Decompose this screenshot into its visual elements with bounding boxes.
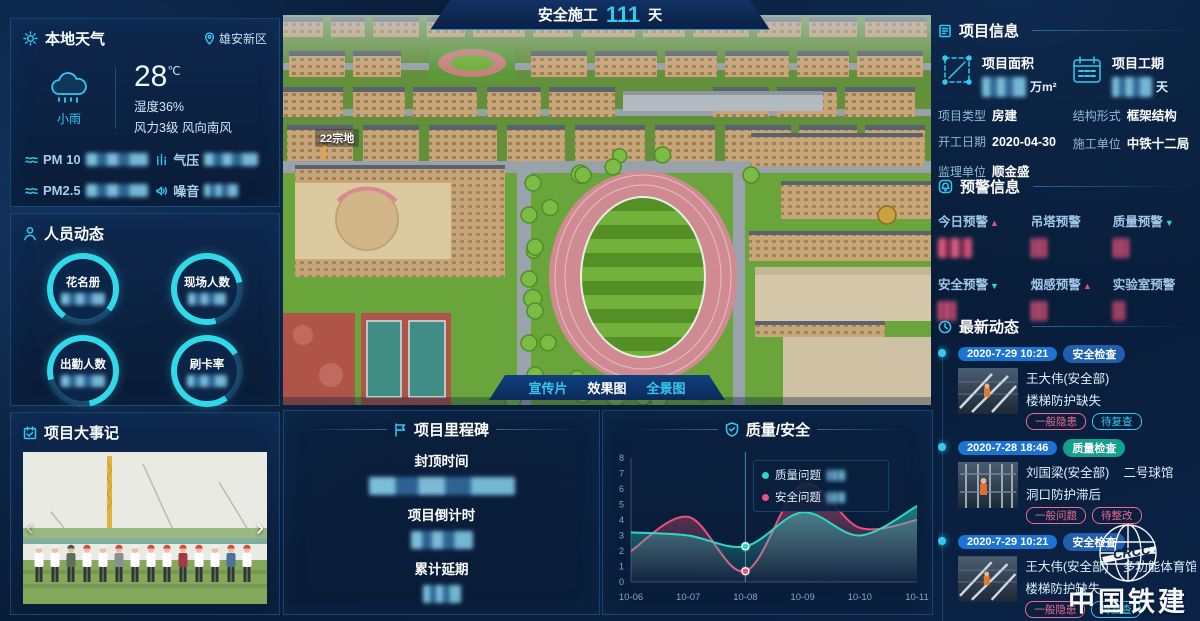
- inspection-photo-thumbnail: [958, 556, 1017, 602]
- blurred-value: [86, 184, 148, 197]
- project-row-value: 房建: [992, 109, 1017, 123]
- series-name: 质量问题: [775, 467, 821, 483]
- milestone-items: 封顶时间项目倒计时累计延期: [284, 440, 599, 603]
- update-date-badge: 2020-7-29 10:21: [958, 535, 1057, 549]
- title-decoration: [817, 429, 903, 430]
- metric-label: 噪音: [173, 181, 199, 200]
- trend-down-icon: ▼: [990, 281, 999, 291]
- blurred-value: [938, 238, 972, 258]
- ring-label: 出勤人数: [60, 356, 106, 372]
- project-duration-stat: 项目工期 天: [1070, 53, 1190, 97]
- metric-icon: [155, 184, 168, 197]
- trend-down-icon: ▼: [1165, 218, 1174, 228]
- title-decoration: [301, 429, 387, 430]
- dashboard-root: 安全施工 111 天 22宗地 宣传片效果图全景图 本地天气 雄安新区 小雨: [0, 0, 1200, 621]
- chart-title: 质量/安全: [746, 419, 810, 440]
- milestone-label: 封顶时间: [415, 450, 469, 470]
- blurred-value: [61, 293, 105, 305]
- milestone-panel: 项目里程碑 封顶时间项目倒计时累计延期: [283, 410, 600, 615]
- temperature-value: 28: [134, 60, 167, 93]
- carousel-prev-button[interactable]: ‹: [26, 516, 34, 540]
- events-title: 项目大事记: [44, 422, 119, 443]
- ring-content: 出勤人数: [53, 341, 113, 401]
- personnel-rings: 花名册现场人数出勤人数刷卡率: [11, 249, 279, 407]
- blurred-value: [204, 184, 238, 197]
- location-label: 雄安新区: [219, 30, 267, 47]
- milestone-label: 项目倒计时: [408, 504, 476, 524]
- update-date-badge: 2020-7-28 18:46: [958, 441, 1057, 455]
- project-row: 项目类型房建: [938, 105, 1067, 124]
- svg-text:10-06: 10-06: [619, 592, 643, 603]
- update-issue: 洞口防护滞后: [1026, 484, 1173, 503]
- alert-bell-icon: [938, 179, 953, 194]
- project-row: 开工日期2020-04-30: [938, 133, 1067, 152]
- aerial-render-image: [283, 15, 931, 405]
- update-issue: 楼梯防护缺失: [1026, 390, 1142, 409]
- update-entry[interactable]: 2020-7-28 18:46质量检查刘国梁(安全部)二号球馆洞口防护滞后一般问…: [958, 439, 1196, 524]
- svg-text:10-07: 10-07: [676, 592, 700, 603]
- project-row-label: 施工单位: [1073, 137, 1121, 151]
- plot-marker[interactable]: 22宗地: [315, 129, 359, 147]
- blurred-area-value: [982, 77, 1026, 97]
- personnel-ring: 出勤人数: [47, 335, 119, 407]
- metric-label: PM 10: [43, 152, 81, 167]
- series-color-dot: [762, 494, 769, 501]
- events-panel: 项目大事记 ‹ ›: [10, 412, 280, 615]
- person-icon: [23, 226, 37, 241]
- ring-label: 刷卡率: [190, 356, 225, 372]
- series-color-dot: [762, 472, 769, 479]
- area-unit: 万m²: [1030, 80, 1057, 94]
- quality-safety-panel: 质量/安全 01234567810-0610-0710-0810-0910-10…: [602, 410, 933, 615]
- update-person: 王大伟(安全部): [1026, 368, 1109, 387]
- update-tags: 一般隐患待复查: [1026, 413, 1142, 430]
- area-icon: [940, 53, 974, 87]
- update-entry-body: 刘国梁(安全部)二号球馆洞口防护滞后一般问题待整改: [958, 462, 1196, 524]
- alert-item: 烟感预警▲: [1031, 274, 1103, 321]
- weather-metric: 气压: [155, 150, 265, 169]
- milestone-title: 项目里程碑: [414, 419, 489, 440]
- project-detail-rows: 项目类型房建结构形式框架结构开工日期2020-04-30施工单位中铁十二局监理单…: [938, 105, 1192, 180]
- project-area-stat: 项目面积 万m²: [940, 53, 1060, 97]
- weather-panel: 本地天气 雄安新区 小雨 28℃ 湿度36% 风力3级 风向南风 PM 10气压…: [10, 18, 280, 207]
- alert-item: 今日预警▲: [938, 211, 1021, 258]
- safe-days-value: 111: [606, 4, 640, 26]
- crcc-abbr: CRCC: [1112, 542, 1152, 562]
- blurred-duration-value: [1112, 77, 1152, 97]
- title-rule: [1032, 30, 1192, 31]
- scene-tab-效果图[interactable]: 效果图: [587, 378, 626, 397]
- alert-label: 质量预警▼: [1113, 211, 1192, 230]
- blurred-value: [86, 153, 148, 166]
- title-decoration: [632, 429, 718, 430]
- alert-label: 实验室预警: [1113, 274, 1192, 293]
- metric-icon: [25, 184, 38, 197]
- milestone-label: 累计延期: [415, 558, 469, 578]
- update-entry-text: 刘国梁(安全部)二号球馆洞口防护滞后一般问题待整改: [1026, 462, 1173, 524]
- alerts-grid: 今日预警▲吊塔预警质量预警▼安全预警▼烟感预警▲实验室预警: [938, 197, 1192, 321]
- milestone-item: 封顶时间: [369, 450, 515, 495]
- project-row-label: 开工日期: [938, 135, 986, 149]
- document-icon: [938, 24, 952, 38]
- crcc-logo: CRCC 中国铁建: [1068, 520, 1188, 619]
- metric-icon: [25, 153, 38, 166]
- chart-tooltip: 质量问题安全问题: [753, 460, 889, 512]
- project-duration-label: 项目工期: [1112, 53, 1168, 72]
- milestone-item: 累计延期: [415, 558, 469, 603]
- svg-text:10-09: 10-09: [790, 592, 814, 603]
- update-entry-body: 王大伟(安全部)楼梯防护缺失一般隐患待复查: [958, 368, 1196, 430]
- alerts-panel: 预警信息 今日预警▲吊塔预警质量预警▼安全预警▼烟感预警▲实验室预警: [938, 176, 1192, 312]
- weather-metric: PM2.5: [25, 181, 151, 200]
- alerts-title: 预警信息: [960, 176, 1020, 197]
- blurred-value: [61, 375, 105, 387]
- ring-content: 花名册: [53, 259, 113, 319]
- updates-title: 最新动态: [959, 316, 1019, 337]
- weather-title: 本地天气: [45, 28, 105, 49]
- humidity-label: 湿度36%: [134, 96, 232, 115]
- update-location: 二号球馆: [1123, 462, 1173, 481]
- project-area-label: 项目面积: [982, 53, 1057, 72]
- blurred-value: [1031, 238, 1047, 258]
- update-entry-header: 2020-7-29 10:21安全检查: [958, 345, 1196, 363]
- chart-body: 01234567810-0610-0710-0810-0910-1010-11 …: [603, 442, 932, 619]
- alert-label: 烟感预警▲: [1031, 274, 1103, 293]
- location-chip: 雄安新区: [204, 30, 267, 47]
- safe-days-unit: 天: [648, 5, 662, 25]
- update-person-line: 王大伟(安全部): [1026, 368, 1142, 387]
- calendar-icon: [1070, 53, 1104, 87]
- shield-check-icon: [725, 422, 739, 437]
- sun-icon: [23, 31, 38, 46]
- weather-metric: PM 10: [25, 150, 151, 169]
- wind-label: 风力3级 风向南风: [134, 117, 232, 136]
- metric-icon: [155, 153, 168, 166]
- svg-text:1: 1: [619, 562, 624, 572]
- temperature-unit: ℃: [167, 64, 180, 78]
- svg-text:8: 8: [619, 453, 624, 463]
- alert-label: 今日预警▲: [938, 211, 1021, 230]
- svg-text:10-10: 10-10: [848, 592, 872, 603]
- scene-tab-bar: 宣传片效果图全景图: [489, 375, 725, 400]
- divider: [115, 67, 116, 129]
- update-type-badge: 安全检查: [1063, 345, 1125, 363]
- svg-text:7: 7: [619, 469, 624, 479]
- project-row-label: 结构形式: [1073, 109, 1121, 123]
- title-rule: [1032, 326, 1196, 327]
- ring-label: 现场人数: [184, 274, 230, 290]
- duration-unit: 天: [1156, 80, 1168, 94]
- weather-metric: 噪音: [155, 181, 265, 200]
- metric-label: 气压: [173, 150, 199, 169]
- blurred-value: [411, 531, 473, 549]
- inspection-photo-thumbnail: [958, 462, 1018, 508]
- svg-text:2: 2: [619, 546, 624, 556]
- update-entry-header: 2020-7-28 18:46质量检查: [958, 439, 1196, 457]
- metric-label: PM2.5: [43, 183, 81, 198]
- svg-text:3: 3: [619, 531, 624, 541]
- ring-content: 刷卡率: [177, 341, 237, 401]
- header-bar: 安全施工 111 天: [430, 0, 770, 30]
- project-info-panel: 项目信息 项目面积 万m² 项目工期 天 项目类型房建结构形式框架结构开工日期2…: [938, 20, 1192, 172]
- blurred-value: [204, 153, 258, 166]
- blurred-value: [827, 492, 845, 503]
- project-row-value: 2020-04-30: [992, 135, 1056, 149]
- trend-up-icon: ▲: [1083, 281, 1092, 291]
- project-row: 结构形式框架结构: [1073, 105, 1192, 124]
- group-photo: [23, 452, 267, 604]
- title-rule: [1033, 186, 1192, 187]
- clock-icon: [938, 320, 952, 334]
- blurred-value: [827, 470, 845, 481]
- personnel-panel: 人员动态 花名册现场人数出勤人数刷卡率: [10, 213, 280, 406]
- personnel-ring: 现场人数: [171, 253, 243, 325]
- weather-condition: 小雨: [57, 110, 81, 127]
- scene-tab-全景图[interactable]: 全景图: [647, 378, 686, 397]
- flag-icon: [394, 423, 407, 437]
- inspection-photo-thumbnail: [958, 368, 1018, 414]
- alert-item: 安全预警▼: [938, 274, 1021, 321]
- personnel-ring: 花名册: [47, 253, 119, 325]
- update-type-badge: 质量检查: [1063, 439, 1125, 457]
- carousel-next-button[interactable]: ›: [256, 516, 264, 540]
- update-date-badge: 2020-7-29 10:21: [958, 347, 1057, 361]
- blurred-value: [187, 375, 227, 387]
- weather-current: 小雨 28℃ 湿度36% 风力3级 风向南风: [11, 54, 279, 138]
- milestone-item: 项目倒计时: [408, 504, 476, 549]
- header-title: 安全施工: [538, 4, 598, 25]
- alert-item: 吊塔预警: [1031, 211, 1103, 258]
- alert-item: 实验室预警: [1113, 274, 1192, 321]
- tooltip-series-row: 安全问题: [762, 489, 880, 505]
- project-row-label: 项目类型: [938, 109, 986, 123]
- trend-up-icon: ▲: [990, 218, 999, 228]
- svg-text:10-11: 10-11: [905, 592, 929, 603]
- update-person-line: 刘国梁(安全部)二号球馆: [1026, 462, 1173, 481]
- status-tag: 一般隐患: [1026, 413, 1086, 430]
- blurred-value: [423, 585, 461, 603]
- status-tag: 待复查: [1092, 413, 1142, 430]
- 3d-scene-view[interactable]: 22宗地 宣传片效果图全景图: [283, 15, 931, 405]
- update-person: 刘国梁(安全部): [1026, 462, 1109, 481]
- blurred-value: [369, 477, 515, 495]
- svg-text:5: 5: [619, 500, 624, 510]
- project-stats: 项目面积 万m² 项目工期 天: [938, 41, 1192, 105]
- project-row-value: 框架结构: [1127, 109, 1177, 123]
- svg-text:6: 6: [619, 484, 624, 494]
- personnel-ring: 刷卡率: [171, 335, 243, 407]
- personnel-title: 人员动态: [44, 223, 104, 244]
- ring-label: 花名册: [66, 274, 101, 290]
- project-info-title: 项目信息: [959, 20, 1019, 41]
- project-row: 施工单位中铁十二局: [1073, 133, 1192, 152]
- svg-text:4: 4: [619, 515, 624, 525]
- title-decoration: [496, 429, 582, 430]
- tooltip-series-row: 质量问题: [762, 467, 880, 483]
- svg-text:0: 0: [619, 577, 624, 587]
- event-photo-carousel: ‹ ›: [23, 452, 267, 604]
- calendar-note-icon: [23, 426, 37, 440]
- pin-icon: [204, 32, 215, 45]
- alert-label: 安全预警▼: [938, 274, 1021, 293]
- blurred-value: [1113, 238, 1129, 258]
- weather-metrics: PM 10气压PM2.5噪音: [11, 138, 279, 200]
- crcc-name: 中国铁建: [1068, 580, 1188, 619]
- alert-label: 吊塔预警: [1031, 211, 1103, 230]
- update-entry-text: 王大伟(安全部)楼梯防护缺失一般隐患待复查: [1026, 368, 1142, 430]
- crcc-globe-icon: CRCC: [1092, 520, 1164, 586]
- ring-content: 现场人数: [177, 259, 237, 319]
- project-row-value: 中铁十二局: [1127, 137, 1190, 151]
- blurred-value: [188, 293, 226, 305]
- scene-tab-宣传片[interactable]: 宣传片: [528, 378, 567, 397]
- rain-cloud-icon: [46, 70, 92, 108]
- alert-item: 质量预警▼: [1113, 211, 1192, 258]
- svg-text:10-08: 10-08: [733, 592, 757, 603]
- update-entry[interactable]: 2020-7-29 10:21安全检查王大伟(安全部)楼梯防护缺失一般隐患待复查: [958, 345, 1196, 430]
- series-name: 安全问题: [775, 489, 821, 505]
